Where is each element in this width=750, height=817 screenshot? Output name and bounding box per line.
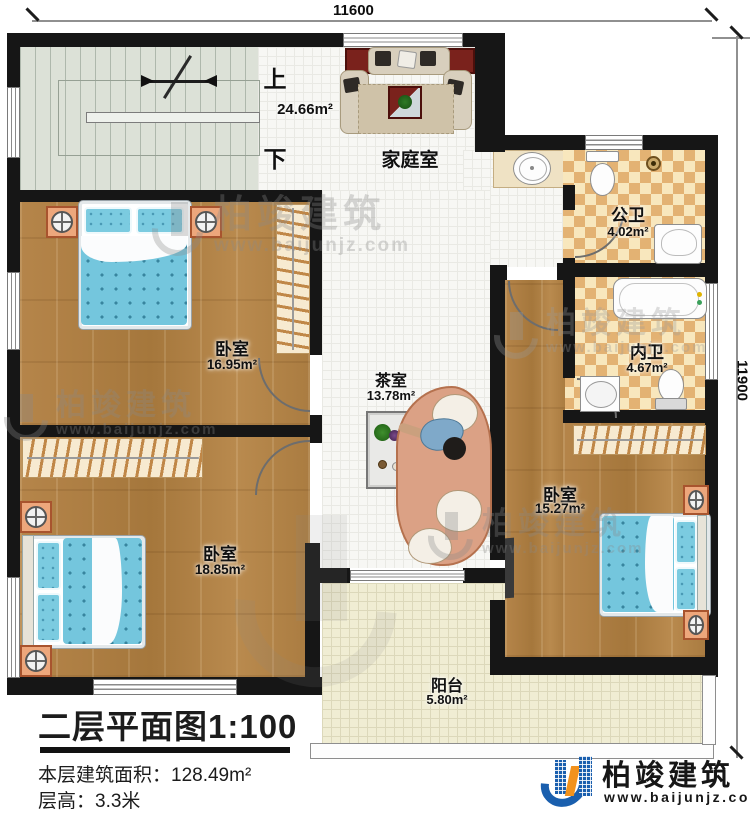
lamp-icon xyxy=(25,506,47,528)
bed-pillow xyxy=(84,207,132,234)
brand-url: www.baijunjz.com xyxy=(604,789,750,805)
window xyxy=(93,679,237,695)
stair-direction-line xyxy=(150,80,208,83)
tea-cup xyxy=(378,460,387,469)
person-head xyxy=(443,437,466,460)
bed-sheet-fold xyxy=(92,538,122,644)
brand-logo-icon xyxy=(540,752,598,810)
wall xyxy=(310,415,322,443)
bath-vanity-bowl xyxy=(661,229,697,256)
ceiling-lamp-dot xyxy=(651,161,656,166)
wall xyxy=(563,185,575,210)
bed-headboard xyxy=(22,535,34,647)
lamp-icon xyxy=(688,615,704,635)
bed-pillow xyxy=(675,520,697,564)
lamp-icon xyxy=(688,490,704,510)
wall xyxy=(310,190,322,355)
logo-building-right xyxy=(579,756,592,796)
floor-area-label: 本层建筑面积： xyxy=(38,765,171,786)
stair-arrow-right xyxy=(204,75,217,87)
sofa-cushion xyxy=(397,50,417,69)
floor-height-value: 3.3米 xyxy=(95,791,140,812)
bed-pillow xyxy=(36,593,61,642)
bed-headboard xyxy=(697,515,707,613)
logo-building-left xyxy=(555,760,566,794)
wall xyxy=(563,263,718,277)
toilet-tank xyxy=(586,151,619,162)
dimension-top-value: 11600 xyxy=(328,2,379,19)
lamp-icon xyxy=(25,650,47,672)
plan-title-text: 二层平面图 xyxy=(38,708,208,745)
sofa-cushion xyxy=(420,51,436,66)
bed-sheet-fold xyxy=(645,516,673,612)
dimension-ext xyxy=(712,37,750,39)
bedroom-top-left-area: 16.95m² xyxy=(188,357,276,372)
window xyxy=(585,135,643,150)
nightstand xyxy=(683,610,709,640)
stair-arrow-left xyxy=(141,75,154,87)
bathtub-faucet xyxy=(697,292,702,297)
toilet-tank xyxy=(655,398,687,410)
nightstand xyxy=(683,485,709,515)
nightstand xyxy=(20,501,52,533)
floor-height-line: 层高：3.3米 xyxy=(38,786,140,813)
bed-pillow xyxy=(675,567,697,611)
wall xyxy=(490,265,507,280)
wall xyxy=(475,33,505,152)
wardrobe xyxy=(573,425,706,455)
floor-height-label: 层高： xyxy=(38,791,95,812)
balcony-area: 5.80m² xyxy=(418,692,476,707)
nightstand xyxy=(46,206,78,238)
plant xyxy=(398,95,412,109)
wall xyxy=(557,263,575,280)
sofa-cushion xyxy=(375,51,391,66)
window xyxy=(7,87,20,158)
stair-handrail xyxy=(86,112,260,123)
dimension-right-value: 11900 xyxy=(734,344,750,418)
toilet-bowl xyxy=(590,163,615,196)
floor-plan-canvas: 上 24.66m² 下 家庭室 公卫 4.02m² 内卫 4.67m² 卧室 1… xyxy=(0,0,750,817)
bathtub-faucet xyxy=(697,300,702,305)
bedroom-bottom-left-area: 18.85m² xyxy=(176,562,264,577)
balcony-railing-right xyxy=(702,675,716,745)
public-bath-name: 公卫 xyxy=(597,201,659,226)
balcony-sliding-door xyxy=(350,570,465,581)
window xyxy=(7,272,20,350)
wash-basin-drain xyxy=(530,166,534,170)
floor-area-value: 128.49m² xyxy=(171,765,251,786)
nightstand xyxy=(20,645,52,677)
lamp-icon xyxy=(195,211,217,233)
title-underline xyxy=(40,747,290,753)
bathtub-inner xyxy=(619,283,699,316)
wardrobe xyxy=(276,204,310,354)
lamp-icon xyxy=(51,211,73,233)
public-bath-area: 4.02m² xyxy=(592,224,664,239)
family-room-name: 家庭室 xyxy=(363,145,457,172)
wall xyxy=(463,568,505,583)
dimension-line-top xyxy=(32,20,712,22)
bed-pillow xyxy=(36,541,61,590)
window xyxy=(7,577,20,678)
tea-sofa-cushion xyxy=(436,490,482,532)
bed-pillow xyxy=(136,207,184,234)
wall xyxy=(490,600,505,660)
washstand-bowl xyxy=(585,381,617,408)
wall xyxy=(20,425,310,437)
bedroom-right-corridor-floor xyxy=(505,280,565,657)
inner-bath-area: 4.67m² xyxy=(611,360,683,375)
tea-room-area: 13.78m² xyxy=(352,388,430,403)
stair-down-label: 下 xyxy=(253,140,297,174)
wall xyxy=(310,568,350,583)
plan-title: 二层平面图1:100 xyxy=(38,700,297,748)
plan-scale: 1:100 xyxy=(208,708,297,745)
floor-area-line: 本层建筑面积：128.49m² xyxy=(38,760,251,787)
nightstand xyxy=(190,206,222,238)
wall xyxy=(490,265,505,560)
bedroom-right-area: 15.27m² xyxy=(516,501,604,516)
stair-up-label: 上 xyxy=(253,60,297,94)
window xyxy=(343,33,463,47)
wall xyxy=(305,543,320,695)
tea-sofa-cushion xyxy=(408,528,452,564)
wall xyxy=(490,657,718,675)
brand-name: 柏竣建筑 xyxy=(602,752,734,794)
door-leaf xyxy=(505,538,514,599)
family-room-area: 24.66m² xyxy=(258,101,352,118)
wardrobe xyxy=(22,438,203,478)
